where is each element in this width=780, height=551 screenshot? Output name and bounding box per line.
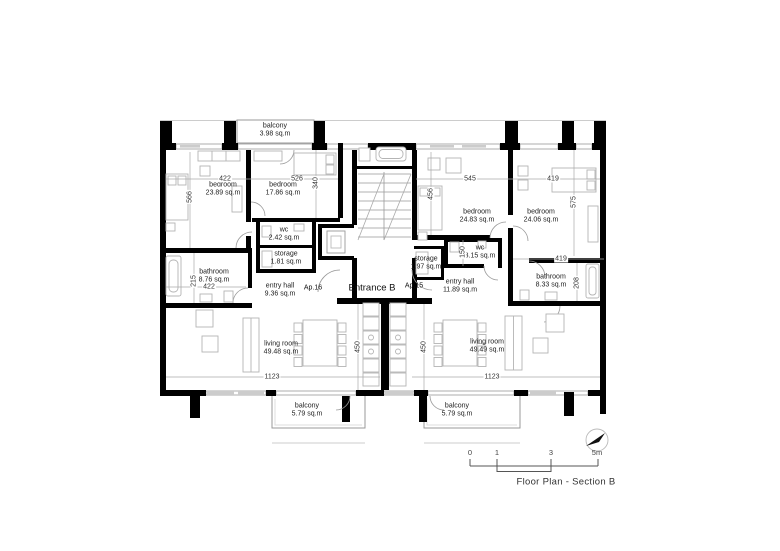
elevator-wall	[318, 224, 322, 260]
scale-tick-3: 3	[549, 448, 553, 457]
room-label-wc-l: wc2.42 sq.m	[269, 227, 300, 242]
scale-tick-1: 1	[495, 448, 499, 457]
furniture-core-top	[359, 147, 406, 161]
dim-208: 208	[574, 276, 581, 290]
furniture-bedroom-r1	[418, 158, 461, 240]
room-label-wc-r: wc3.15 sq.m	[465, 245, 496, 260]
dim-1123-left: 1123	[263, 374, 280, 381]
room-label-living-r: living room49.49 sq.m	[470, 339, 505, 354]
room-label-living-l: living room49.48 sq.m	[264, 341, 299, 356]
dim-419-top: 419	[546, 176, 560, 183]
dim-450-right: 450	[421, 340, 428, 354]
dim-545: 545	[463, 176, 477, 183]
balcony-pillar	[342, 396, 350, 422]
dim-340: 340	[313, 176, 320, 190]
dim-456: 456	[428, 187, 435, 201]
dim-422-top: 422	[218, 176, 232, 183]
room-label-bedroom-r2: bedroom24.06 sq.m	[524, 209, 559, 224]
room-label-top-balcony: balcony3.98 sq.m	[260, 123, 291, 138]
dim-150: 150	[460, 245, 467, 259]
room-label-storage-r: storage1.97 sq.m	[411, 256, 442, 271]
apartment-left-label: Ap.16	[304, 285, 322, 292]
dim-526: 526	[290, 176, 304, 183]
facade-pillar	[160, 121, 172, 143]
floor-plan-canvas: balcony3.98 sq.m bedroom23.89 sq.m bedro…	[0, 0, 780, 551]
room-label-entry-l: entry hall9.36 sq.m	[265, 283, 296, 298]
scale-bar	[470, 459, 598, 472]
facade-pillar	[505, 121, 518, 143]
room-label-balcony-l: balcony5.79 sq.m	[292, 403, 323, 418]
room-label-storage-l: storage1.81 sq.m	[271, 251, 302, 266]
elevator-wall	[318, 256, 354, 260]
room-label-entry-r: entry hall11.89 sq.m	[443, 279, 477, 294]
dim-1123-right: 1123	[483, 374, 500, 381]
furniture-bedroom-l2	[254, 151, 336, 175]
elevator	[327, 231, 345, 253]
dim-422-bath: 422	[202, 284, 216, 291]
scale-tick-0: 0	[468, 448, 472, 457]
room-label-balcony-r: balcony5.79 sq.m	[442, 403, 473, 418]
entrance-label: Entrance B	[349, 283, 396, 294]
facade-pillar	[594, 121, 606, 143]
room-label-bathroom-l: bathroom8.76 sq.m	[199, 269, 230, 284]
dim-215: 215	[191, 274, 198, 288]
balcony-pillar	[564, 392, 574, 416]
floor-plan-drawing	[0, 0, 780, 551]
elevator-wall	[318, 224, 354, 228]
room-label-bedroom-l2: bedroom17.86 sq.m	[266, 182, 301, 197]
room-label-bedroom-r1: bedroom24.83 sq.m	[460, 209, 495, 224]
dim-566: 566	[187, 190, 194, 204]
balcony-pillar	[419, 396, 427, 422]
balcony-pillar	[190, 394, 200, 418]
facade-pillar	[314, 121, 325, 143]
apartment-right-label: Ap.15	[405, 283, 423, 290]
facade-pillar	[224, 121, 236, 143]
scale-tick-5m: 5m	[592, 448, 602, 457]
room-label-bedroom-l1: bedroom23.89 sq.m	[206, 182, 241, 197]
room-label-bathroom-r: bathroom8.33 sq.m	[536, 274, 567, 289]
drawing-title: Floor Plan - Section B	[516, 477, 615, 488]
staircase	[358, 172, 411, 240]
dim-575: 575	[571, 195, 578, 209]
dim-450-left: 450	[355, 340, 362, 354]
facade-pillar	[562, 121, 574, 143]
dim-419-bath: 419	[554, 256, 568, 263]
